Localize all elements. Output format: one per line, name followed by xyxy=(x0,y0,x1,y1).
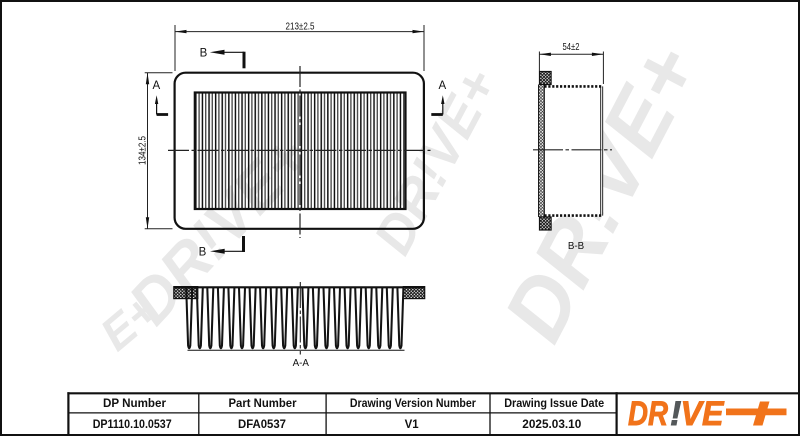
svg-text:54±2: 54±2 xyxy=(563,41,580,53)
svg-text:A: A xyxy=(439,80,447,92)
svg-text:DR: DR xyxy=(628,395,668,433)
svg-text:2025.03.10: 2025.03.10 xyxy=(522,419,581,431)
svg-text:VE: VE xyxy=(681,395,725,433)
svg-text:213±2.5: 213±2.5 xyxy=(286,20,315,32)
svg-text:DP1110.10.0537: DP1110.10.0537 xyxy=(93,419,172,431)
svg-text:Drawing Version Number: Drawing Version Number xyxy=(350,396,476,410)
svg-text:B: B xyxy=(200,47,208,59)
svg-text:B: B xyxy=(199,246,207,258)
svg-text:DFA0537: DFA0537 xyxy=(238,419,286,431)
svg-text:V1: V1 xyxy=(405,419,420,431)
svg-text:Drawing Issue Date: Drawing Issue Date xyxy=(504,396,604,410)
svg-text:A: A xyxy=(153,80,161,92)
svg-text:DP Number: DP Number xyxy=(103,396,166,410)
svg-text:B-B: B-B xyxy=(568,241,585,252)
svg-text:A-A: A-A xyxy=(293,358,310,369)
svg-text:Part Number: Part Number xyxy=(229,396,297,410)
svg-text:134±2.5: 134±2.5 xyxy=(136,136,148,165)
